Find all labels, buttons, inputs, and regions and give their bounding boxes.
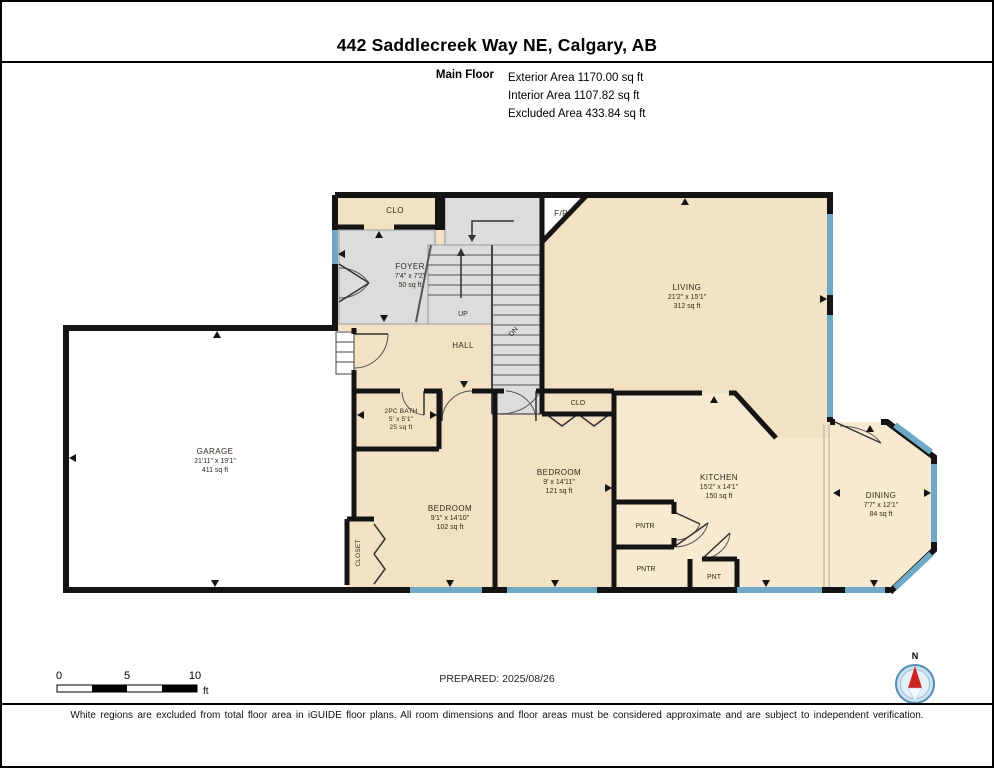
label-bedroom-right-closet: CLO [571,400,586,407]
label-bedroom-right-dims: 9' x 14'11" [543,479,575,486]
label-bedroom-left: BEDROOM [428,504,472,513]
label-dining-dims: 7'7" x 12'1" [864,502,899,509]
label-bedroom-left-dims: 9'1" x 14'10" [431,515,470,522]
label-foyer-dims: 7'4" x 7'2" [395,273,426,280]
label-kitchen-dims: 15'2" x 14'1" [700,484,739,491]
garage-steps [336,332,354,374]
label-garage-area: 411 sq ft [202,467,228,474]
label-living: LIVING [673,283,702,292]
label-fireplace: F/P [554,209,568,218]
label-kitchen-area: 150 sq ft [706,493,733,500]
label-closet: CLOSET [355,539,362,566]
label-bath-area: 25 sq ft [390,424,413,431]
label-bedroom-right-area: 121 sq ft [546,488,573,495]
floorplan-page: 442 Saddlecreek Way NE, Calgary, AB Main… [0,0,994,768]
label-dining-area: 84 sq ft [870,511,893,518]
label-living-area: 312 sq ft [674,303,701,310]
label-kitchen: KITCHEN [700,473,738,482]
footer-divider [2,703,992,705]
scale-unit: ft [203,686,209,697]
label-foyer-area: 50 sq ft [399,282,422,289]
label-bath-dims: 5' x 5'1" [389,416,414,423]
label-pantry-upper: PNTR [635,523,654,530]
label-pantry-small: PNT [707,574,722,581]
label-foyer: FOYER [395,262,425,271]
label-bedroom-right: BEDROOM [537,468,581,477]
prepared-date: PREPARED: 2025/08/26 [2,673,992,685]
label-dining: DINING [866,491,896,500]
label-garage: GARAGE [197,447,234,456]
stair-wall-stub [435,195,445,230]
compass-north-label: N [912,651,919,661]
label-bedroom-left-area: 102 sq ft [437,524,464,531]
label-bath: 2PC BATH [385,408,418,415]
floorplan-drawing: CLO FOYER 7'4" x 7'2" 50 sq ft F/P LIVIN… [2,2,992,766]
disclaimer-text: White regions are excluded from total fl… [38,710,956,721]
label-garage-dims: 21'11" x 19'1" [194,458,236,465]
label-pantry-lower: PNTR [636,566,655,573]
label-foyer-closet: CLO [386,206,404,215]
label-stairs-up: UP [458,311,468,318]
label-living-dims: 21'2" x 15'1" [668,294,707,301]
label-hall: HALL [452,341,474,350]
